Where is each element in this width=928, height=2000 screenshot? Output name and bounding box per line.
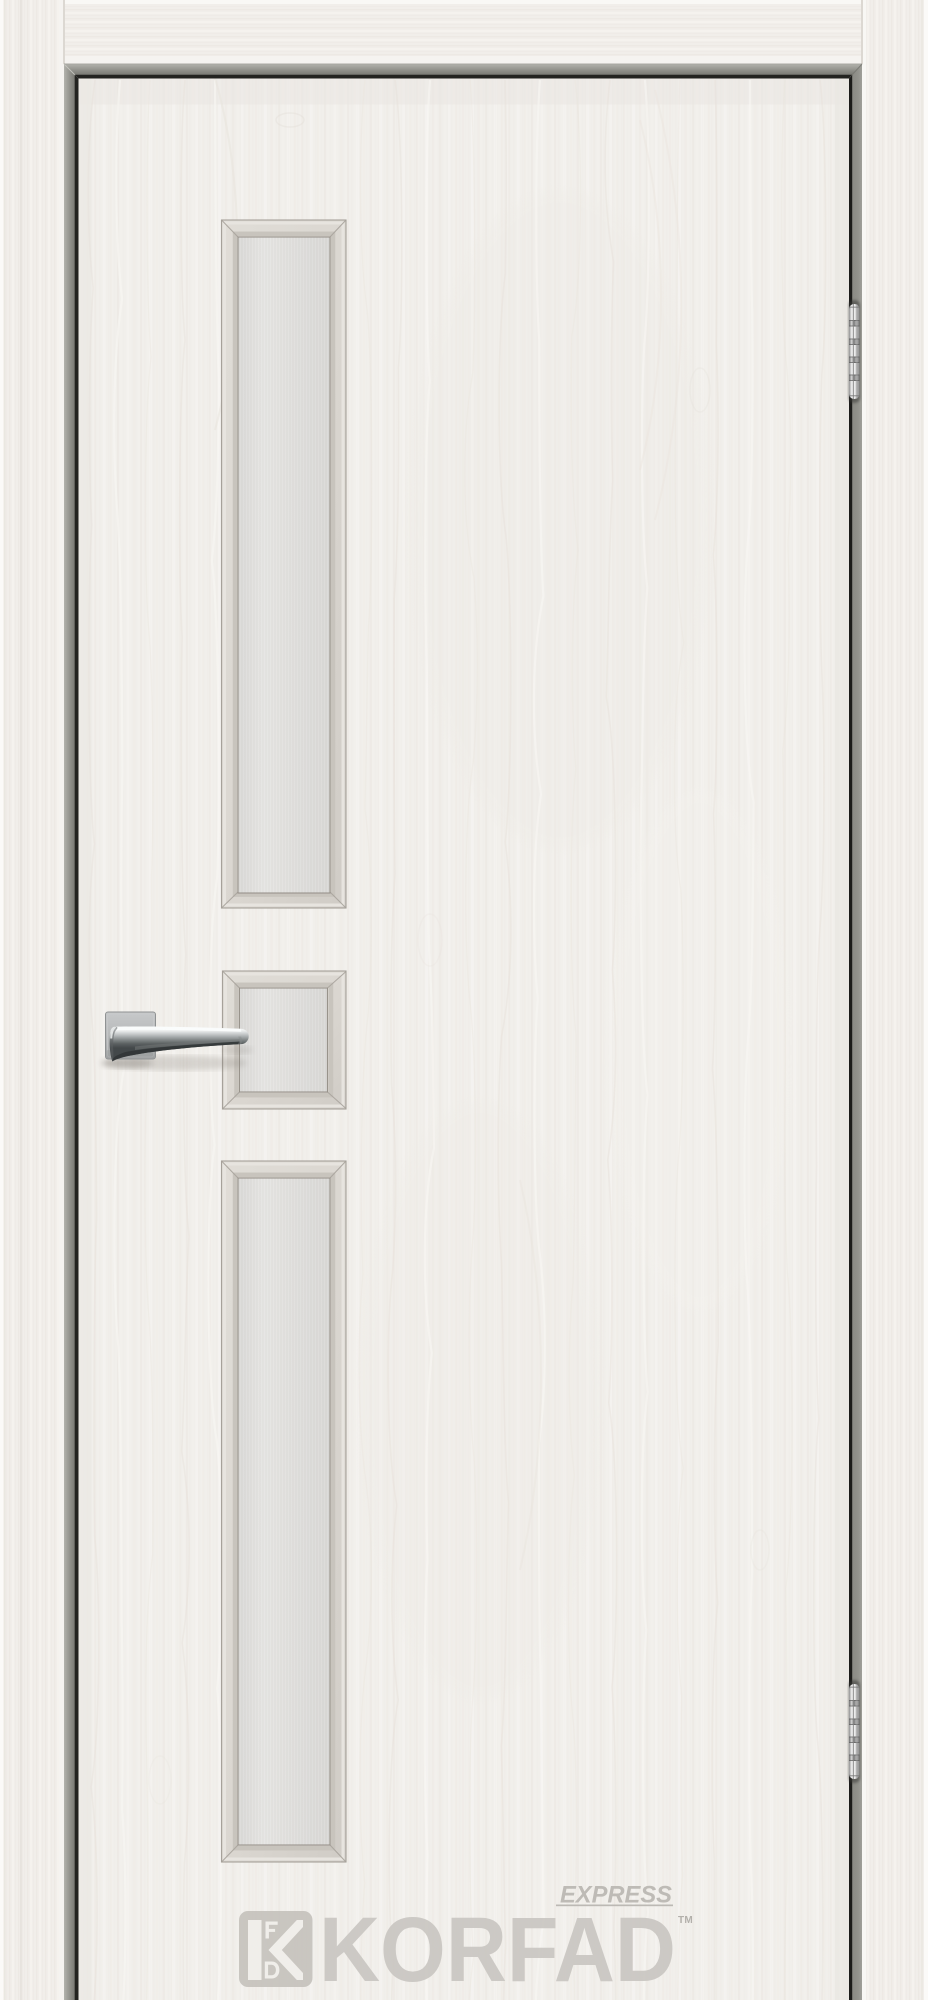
svg-text:TM: TM bbox=[678, 1915, 693, 1926]
svg-text:EXPRESS: EXPRESS bbox=[560, 1882, 672, 1909]
svg-text:KORFAD: KORFAD bbox=[319, 1899, 676, 2000]
